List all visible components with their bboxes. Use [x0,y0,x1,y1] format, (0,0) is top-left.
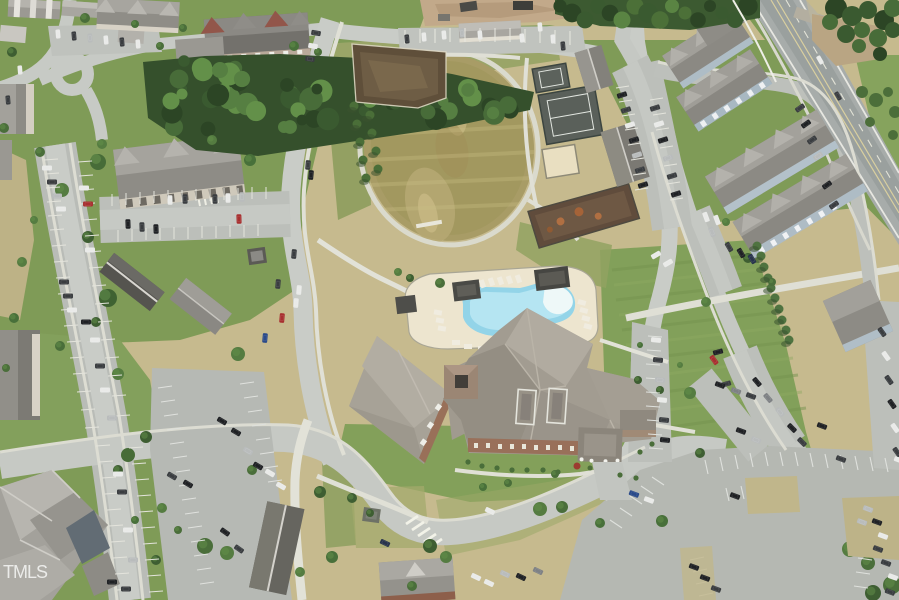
svg-text:TMLS: TMLS [3,562,48,582]
